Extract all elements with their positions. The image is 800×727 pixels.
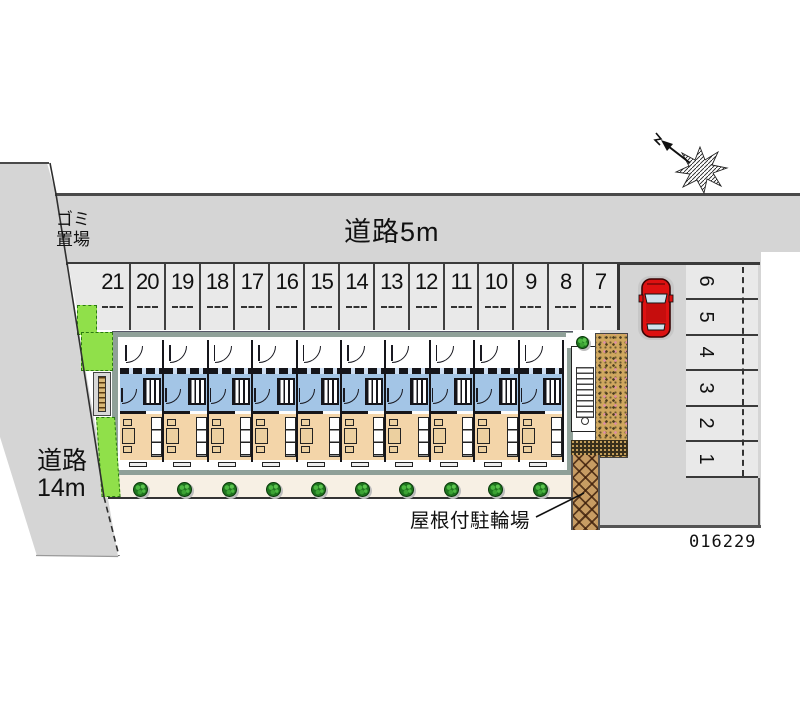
table-icon bbox=[522, 428, 535, 444]
site-plan-canvas: 212019181716151413121110987 654321 bbox=[0, 0, 800, 727]
stall-dash-mark bbox=[416, 306, 437, 308]
unit-living-room bbox=[253, 414, 297, 460]
stall-number: 19 bbox=[166, 269, 199, 295]
unit-balcony bbox=[475, 460, 519, 470]
parking-row-top: 212019181716151413121110987 bbox=[96, 264, 620, 330]
unit-balcony bbox=[298, 460, 342, 470]
bathroom-fixture-icon bbox=[543, 378, 561, 405]
bathroom-fixture-icon bbox=[499, 378, 517, 405]
stall-dash-mark bbox=[137, 306, 158, 308]
interior-door-arc bbox=[166, 389, 181, 404]
chair-icon bbox=[523, 419, 532, 426]
wall-footing bbox=[571, 440, 628, 456]
covered-bicycle-parking-area bbox=[571, 455, 600, 530]
parking-stall-19: 19 bbox=[164, 264, 199, 330]
interior-door-arc bbox=[122, 389, 137, 404]
unit-entry bbox=[298, 340, 342, 368]
balcony-step bbox=[440, 462, 458, 467]
unit-balcony bbox=[209, 460, 253, 470]
road-left-label-line2: 14m bbox=[37, 474, 86, 502]
stall-number: 20 bbox=[131, 269, 164, 295]
parking-stall-16: 16 bbox=[268, 264, 303, 330]
entry-door-arc bbox=[526, 346, 543, 363]
stall-dash-mark bbox=[590, 306, 611, 308]
apartment-unit bbox=[342, 340, 386, 470]
parking-stall-1: 1 bbox=[686, 442, 758, 478]
stall-number: 10 bbox=[479, 269, 512, 295]
chair-icon bbox=[301, 446, 310, 453]
court-right-edge bbox=[758, 478, 760, 527]
parking-stall-13: 13 bbox=[373, 264, 408, 330]
unit-entry bbox=[253, 340, 297, 368]
unit-bathroom-zone bbox=[120, 374, 164, 411]
entry-door-arc bbox=[481, 346, 498, 363]
apartment-unit bbox=[164, 340, 208, 470]
parking-stall-5: 5 bbox=[686, 300, 758, 336]
unit-living-room bbox=[475, 414, 519, 460]
apartment-unit bbox=[520, 340, 564, 470]
stall-number: 8 bbox=[549, 269, 582, 295]
unit-bathroom-zone bbox=[520, 374, 564, 411]
bush-icon bbox=[533, 482, 548, 497]
road-left-label-line1: 道路 bbox=[37, 447, 87, 475]
entry-door-arc bbox=[304, 346, 321, 363]
chair-icon bbox=[167, 419, 176, 426]
stair-post bbox=[581, 417, 589, 425]
road-left-top-edge bbox=[0, 162, 49, 164]
chair-icon bbox=[434, 419, 443, 426]
chair-icon bbox=[123, 446, 132, 453]
unit-living-room bbox=[342, 414, 386, 460]
interior-door-arc bbox=[255, 389, 270, 404]
unit-living-room bbox=[209, 414, 253, 460]
unit-bathroom-zone bbox=[298, 374, 342, 411]
unit-divider-wall bbox=[562, 340, 564, 462]
interior-door-arc bbox=[211, 389, 226, 404]
bike-rack-icon bbox=[93, 372, 111, 416]
unit-entry bbox=[431, 340, 475, 368]
north-arrow-icon bbox=[655, 133, 727, 193]
chair-icon bbox=[123, 419, 132, 426]
bush-icon bbox=[311, 482, 326, 497]
stall-number: 12 bbox=[410, 269, 443, 295]
table-icon bbox=[344, 428, 357, 444]
apartment-unit bbox=[475, 340, 519, 470]
stall-dash-mark bbox=[241, 306, 262, 308]
stall-number: 7 bbox=[584, 269, 617, 295]
bathroom-fixture-icon bbox=[143, 378, 161, 405]
parking-stall-9: 9 bbox=[512, 264, 547, 330]
kitchen-counter-icon bbox=[240, 417, 251, 457]
kitchen-counter-icon bbox=[462, 417, 473, 457]
unit-living-room bbox=[164, 414, 208, 460]
parking-stall-10: 10 bbox=[477, 264, 512, 330]
parking-stall-11: 11 bbox=[443, 264, 478, 330]
chair-icon bbox=[478, 419, 487, 426]
chair-icon bbox=[345, 446, 354, 453]
interior-door-arc bbox=[477, 389, 492, 404]
stall-dash-mark bbox=[485, 306, 506, 308]
bathroom-fixture-icon bbox=[188, 378, 206, 405]
walkway-edge-line bbox=[108, 497, 571, 499]
stall-dash-mark bbox=[207, 306, 228, 308]
bush-icon bbox=[133, 482, 148, 497]
balcony-step bbox=[218, 462, 236, 467]
unit-balcony bbox=[431, 460, 475, 470]
stall-dash-mark bbox=[555, 306, 576, 308]
table-icon bbox=[388, 428, 401, 444]
parking-stall-12: 12 bbox=[408, 264, 443, 330]
apartment-units bbox=[120, 340, 564, 470]
unit-bathroom-zone bbox=[386, 374, 430, 411]
chair-icon bbox=[345, 419, 354, 426]
stall-dash-mark bbox=[346, 306, 367, 308]
garbage-area-label-line2: 置場 bbox=[56, 230, 90, 249]
interior-door-arc bbox=[433, 389, 448, 404]
bush-icon bbox=[222, 482, 237, 497]
chair-icon bbox=[434, 446, 443, 453]
kitchen-counter-icon bbox=[418, 417, 429, 457]
stall-number: 14 bbox=[340, 269, 373, 295]
unit-entry bbox=[386, 340, 430, 368]
kitchen-counter-icon bbox=[285, 417, 296, 457]
stair-steps bbox=[576, 367, 594, 418]
parking-column-right: 654321 bbox=[686, 265, 758, 478]
balcony-step bbox=[484, 462, 502, 467]
unit-bathroom-zone bbox=[342, 374, 386, 411]
stall-number: 6 bbox=[694, 276, 717, 287]
entry-door-arc bbox=[392, 346, 409, 363]
bathroom-fixture-icon bbox=[365, 378, 383, 405]
stall-number: 16 bbox=[270, 269, 303, 295]
stall-dash-mark bbox=[520, 306, 541, 308]
entry-door-arc bbox=[437, 346, 454, 363]
table-icon bbox=[477, 428, 490, 444]
stall-dash-mark bbox=[172, 306, 193, 308]
unit-entry bbox=[520, 340, 564, 368]
stall-number: 3 bbox=[694, 382, 717, 393]
apartment-unit bbox=[386, 340, 430, 470]
balcony-step bbox=[173, 462, 191, 467]
unit-bathroom-zone bbox=[253, 374, 297, 411]
kitchen-counter-icon bbox=[373, 417, 384, 457]
chair-icon bbox=[389, 446, 398, 453]
bathroom-fixture-icon bbox=[277, 378, 295, 405]
chair-icon bbox=[301, 419, 310, 426]
bush-icon bbox=[576, 336, 589, 349]
parking-stall-21: 21 bbox=[96, 264, 129, 330]
court-bottom-edge bbox=[600, 525, 761, 528]
interior-door-arc bbox=[522, 389, 537, 404]
stall-dash-mark bbox=[276, 306, 297, 308]
entry-door-arc bbox=[215, 346, 232, 363]
road-left-label: 道路14m bbox=[37, 448, 87, 502]
unit-entry bbox=[120, 340, 164, 368]
unit-balcony bbox=[164, 460, 208, 470]
unit-entry bbox=[209, 340, 253, 368]
parking-stall-6: 6 bbox=[686, 265, 758, 301]
apartment-unit bbox=[431, 340, 475, 470]
stall-number: 11 bbox=[445, 269, 478, 295]
kitchen-counter-icon bbox=[329, 417, 340, 457]
chair-icon bbox=[256, 419, 265, 426]
unit-entry bbox=[475, 340, 519, 368]
apartment-unit bbox=[209, 340, 253, 470]
entry-door-arc bbox=[348, 346, 365, 363]
balcony-step bbox=[129, 462, 147, 467]
parking-stall-17: 17 bbox=[233, 264, 268, 330]
unit-balcony bbox=[120, 460, 164, 470]
entry-door-arc bbox=[259, 346, 276, 363]
parking-stall-18: 18 bbox=[199, 264, 234, 330]
apartment-unit bbox=[298, 340, 342, 470]
road-top-label: 道路5m bbox=[344, 210, 440, 249]
unit-living-room bbox=[298, 414, 342, 460]
unit-bathroom-zone bbox=[431, 374, 475, 411]
unit-entry bbox=[342, 340, 386, 368]
chair-icon bbox=[256, 446, 265, 453]
stall-number: 9 bbox=[514, 269, 547, 295]
stall-number: 17 bbox=[235, 269, 268, 295]
chair-icon bbox=[167, 446, 176, 453]
parking-stall-15: 15 bbox=[303, 264, 338, 330]
balcony-step bbox=[262, 462, 280, 467]
stall-number: 4 bbox=[694, 347, 717, 358]
parking-stall-20: 20 bbox=[129, 264, 164, 330]
unit-balcony bbox=[253, 460, 297, 470]
bush-icon bbox=[355, 482, 370, 497]
kitchen-counter-icon bbox=[507, 417, 518, 457]
chair-icon bbox=[212, 446, 221, 453]
balcony-step bbox=[529, 462, 547, 467]
covered-bicycle-parking-label: 屋根付駐輪場 bbox=[410, 504, 530, 533]
unit-bathroom-zone bbox=[164, 374, 208, 411]
chair-icon bbox=[389, 419, 398, 426]
balcony-step bbox=[351, 462, 369, 467]
stall-number: 2 bbox=[694, 418, 717, 429]
apartment-unit bbox=[120, 340, 164, 470]
table-icon bbox=[211, 428, 224, 444]
table-icon bbox=[433, 428, 446, 444]
garbage-area-label-line1: ゴミ bbox=[56, 210, 90, 229]
table-icon bbox=[122, 428, 135, 444]
chair-icon bbox=[478, 446, 487, 453]
unit-balcony bbox=[520, 460, 564, 470]
balcony-step bbox=[307, 462, 325, 467]
stall-dash-mark bbox=[311, 306, 332, 308]
kitchen-counter-icon bbox=[196, 417, 207, 457]
unit-bathroom-zone bbox=[209, 374, 253, 411]
unit-balcony bbox=[386, 460, 430, 470]
plan-number: 016229 bbox=[689, 532, 756, 552]
chair-icon bbox=[523, 446, 532, 453]
table-icon bbox=[255, 428, 268, 444]
unit-balcony bbox=[342, 460, 386, 470]
unit-bathroom-zone bbox=[475, 374, 519, 411]
table-icon bbox=[300, 428, 313, 444]
bathroom-fixture-icon bbox=[454, 378, 472, 405]
unit-living-room bbox=[386, 414, 430, 460]
parking-stall-2: 2 bbox=[686, 407, 758, 443]
stall-dash-mark bbox=[102, 306, 123, 308]
garbage-area-label: ゴミ置場 bbox=[56, 210, 90, 249]
unit-living-room bbox=[520, 414, 564, 460]
parking-stall-14: 14 bbox=[338, 264, 373, 330]
stall-dash-mark bbox=[381, 306, 402, 308]
entry-door-arc bbox=[126, 346, 143, 363]
table-icon bbox=[166, 428, 179, 444]
stall-dash-mark bbox=[451, 306, 472, 308]
parking-stall-4: 4 bbox=[686, 336, 758, 372]
stall-number: 5 bbox=[694, 311, 717, 322]
bush-icon bbox=[444, 482, 459, 497]
stall-number: 15 bbox=[305, 269, 338, 295]
parking-stall-8: 8 bbox=[547, 264, 582, 330]
unit-entry bbox=[164, 340, 208, 368]
interior-door-arc bbox=[300, 389, 315, 404]
lawn-patch bbox=[81, 332, 113, 371]
stall-number: 18 bbox=[201, 269, 234, 295]
parking-stall-3: 3 bbox=[686, 371, 758, 407]
balcony-step bbox=[395, 462, 413, 467]
bathroom-fixture-icon bbox=[321, 378, 339, 405]
kitchen-counter-icon bbox=[551, 417, 562, 457]
parking-stall-7: 7 bbox=[582, 264, 617, 330]
bike-rack-detail bbox=[98, 376, 106, 412]
bathroom-fixture-icon bbox=[410, 378, 428, 405]
bathroom-fixture-icon bbox=[232, 378, 250, 405]
chair-icon bbox=[212, 419, 221, 426]
unit-living-room bbox=[431, 414, 475, 460]
stall-number: 1 bbox=[694, 453, 717, 464]
stall-number: 13 bbox=[375, 269, 408, 295]
kitchen-counter-icon bbox=[151, 417, 162, 457]
interior-door-arc bbox=[344, 389, 359, 404]
unit-living-room bbox=[120, 414, 164, 460]
interior-door-arc bbox=[388, 389, 403, 404]
lawn-patch bbox=[77, 305, 97, 335]
entry-door-arc bbox=[170, 346, 187, 363]
apartment-unit bbox=[253, 340, 297, 470]
stall-back-dashed-line bbox=[742, 267, 744, 476]
stall-number: 21 bbox=[96, 269, 129, 295]
